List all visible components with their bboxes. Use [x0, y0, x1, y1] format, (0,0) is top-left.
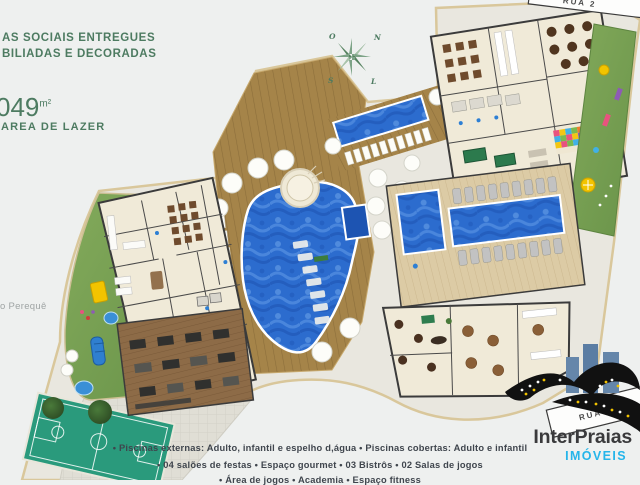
compass-south: S — [328, 76, 334, 85]
covered-pools-hall — [386, 164, 584, 308]
compass-north: N — [373, 33, 382, 42]
caption-line1: • Piscinas externas: Adulto, infantil e … — [40, 443, 600, 453]
compass-west: O — [329, 32, 336, 41]
page: { "header": { "title_line1": "AS SOCIAIS… — [0, 0, 640, 480]
caption-line2: • 04 salões de festas • Espaço gourmet •… — [40, 460, 600, 470]
logo-tagline: IMÓVEIS — [565, 449, 627, 463]
headline-line1: AS SOCIAIS ENTREGUES — [2, 30, 156, 46]
covered-kids-pool — [396, 190, 445, 255]
river-label: o Perequê — [0, 301, 47, 312]
area-label: AREA DE LAZER — [1, 121, 105, 133]
caption-line3: • Área de jogos • Academia • Espaço fitn… — [40, 475, 600, 485]
site-plan-illustration: RUA 2 RUA 272 O N S L — [0, 0, 640, 480]
headline-block: AS SOCIAIS ENTREGUES BILIADAS E DECORADA… — [2, 30, 156, 62]
square-tables — [442, 40, 482, 83]
gym — [117, 309, 253, 416]
area-number: 049m² — [0, 92, 51, 123]
logo-name: InterPraias — [533, 426, 632, 449]
area-unit: m² — [39, 98, 51, 109]
headline-line2: BILIADAS E DECORADAS — [2, 46, 156, 62]
compass-east: L — [370, 77, 376, 86]
attached-kids-pool — [342, 204, 370, 239]
